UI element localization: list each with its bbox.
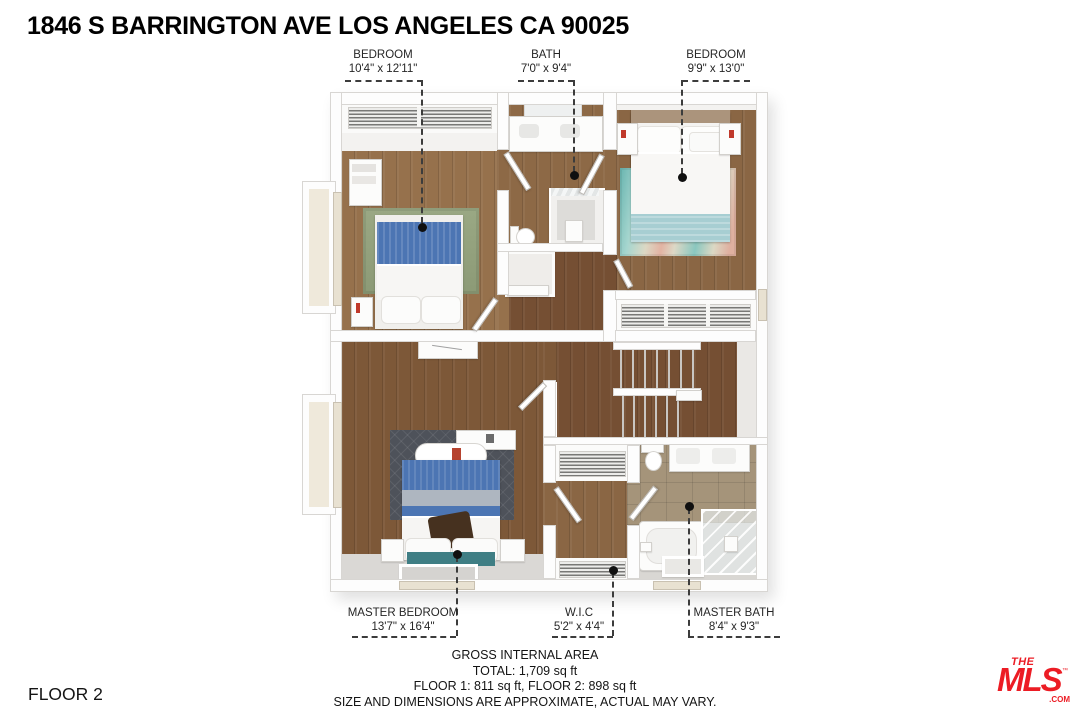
bath-sink-left [519, 124, 539, 138]
stair-baluster [633, 396, 635, 437]
room-label-name: BATH [521, 49, 571, 63]
leader-masterbath-v [688, 508, 690, 636]
leader-bedroom2-h [682, 80, 750, 82]
room-label-bedroom1: BEDROOM 10'4" x 12'11" [349, 49, 418, 76]
outer-wall-right [756, 92, 768, 592]
master-wall-shelf [418, 340, 478, 359]
wall-master-right-a [543, 380, 556, 437]
stair-baluster [644, 350, 646, 388]
room-label-dims: 8'4" x 9'3" [694, 621, 775, 635]
leader-wic-h [552, 636, 613, 638]
closet-bedroom2-louver-doors [621, 304, 751, 328]
bay-window-bottom-sill [309, 402, 329, 507]
stair-baluster [680, 350, 682, 388]
stair-baluster [620, 350, 622, 388]
wall-wic-left-a [543, 445, 556, 483]
stair-baluster [666, 396, 668, 437]
stair-baluster [692, 350, 694, 388]
room-label-wic: W.I.C 5'2" x 4'4" [554, 607, 604, 634]
wall-bedroom2-bottom [615, 290, 756, 300]
wall-master-top [330, 330, 615, 342]
leader-bedroom1-h [345, 80, 423, 82]
stairwell-right-strip [737, 342, 756, 437]
room-label-dims: 7'0" x 9'4" [521, 63, 571, 77]
master-bath-toilet-bowl [645, 451, 662, 471]
leader-bath-v [573, 80, 575, 172]
wall-closet2-bottom [615, 330, 756, 342]
gross-internal-area-label: GROSS INTERNAL AREA [265, 648, 785, 664]
leader-bedroom1-v [421, 80, 423, 223]
themls-logo: THE MLS ™ .COM [996, 656, 1068, 708]
page-title: 1846 S BARRINGTON AVE LOS ANGELES CA 900… [27, 12, 629, 41]
wall-bath-bedroom2-b [603, 190, 617, 255]
window-right-bedroom2 [758, 289, 767, 321]
leader-dot-bedroom1 [418, 223, 427, 232]
closet-bedroom2-door-divider2 [706, 304, 710, 326]
wic-floor [556, 481, 627, 558]
nightstand-bedroom2-right-decor [729, 130, 734, 138]
nightstand-bedroom2-left [617, 123, 638, 155]
logo-com: .COM [1049, 695, 1070, 704]
dresser-bedroom1-drawer2 [352, 176, 376, 184]
bath-shower-glass [551, 188, 599, 196]
room-label-name: MASTER BATH [694, 607, 775, 621]
bed-bedroom2-pillow-small [689, 132, 723, 152]
floor-areas-value: FLOOR 1: 811 sq ft, FLOOR 2: 898 sq ft [265, 679, 785, 695]
room-label-name: BEDROOM [686, 49, 745, 63]
leader-dot-bedroom2 [678, 173, 687, 182]
nightstand-master-right [500, 539, 525, 562]
window-left-bottom [333, 402, 342, 508]
master-bath-sink-right [712, 448, 736, 464]
room-label-dims: 10'4" x 12'11" [349, 63, 418, 77]
linen-closet-shelf [507, 285, 549, 296]
master-wall-panel-decor [486, 434, 494, 443]
bed-bedroom1-pillow-right [421, 296, 461, 324]
leader-dot-masterbath [685, 502, 694, 511]
bath-shower-valve [565, 220, 583, 242]
dresser-bedroom1-drawer [352, 164, 376, 172]
logo-mls: MLS [997, 662, 1061, 698]
master-bench-magazine [452, 448, 461, 460]
nightstand-bedroom1-decor [356, 303, 360, 313]
wall-bedroom1-right-a [497, 92, 509, 150]
logo-trademark: ™ [1062, 668, 1068, 674]
disclaimer-text: SIZE AND DIMENSIONS ARE APPROXIMATE, ACT… [265, 695, 785, 711]
stair-baluster [677, 396, 679, 437]
room-label-dims: 9'9" x 13'0" [686, 63, 745, 77]
room-label-master-bath: MASTER BATH 8'4" x 9'3" [694, 607, 775, 634]
floor-number-label: FLOOR 2 [28, 684, 103, 705]
wall-wic-mbath-top [543, 437, 768, 445]
window-bottom-masterbath [653, 581, 701, 590]
stair-baluster [632, 350, 634, 388]
room-label-master-bedroom: MASTER BEDROOM 13'7" x 16'4" [348, 607, 459, 634]
stair-baluster [656, 350, 658, 388]
bed-master-stripe-gray [402, 490, 500, 506]
bedroom1-ceiling-band [341, 133, 497, 152]
leader-dot-wic [609, 566, 618, 575]
room-label-dims: 13'7" x 16'4" [348, 621, 459, 635]
opening-bath-right [603, 150, 617, 190]
room-label-dims: 5'2" x 4'4" [554, 621, 604, 635]
master-bath-shower-valve [724, 536, 738, 552]
bed-bedroom2-teal-blanket [631, 214, 730, 242]
nightstand-bedroom2-right [719, 123, 741, 155]
stair-baluster [668, 350, 670, 388]
wall-bath-bedroom2-a [603, 92, 617, 150]
room-label-bath: BATH 7'0" x 9'4" [521, 49, 571, 76]
wall-wic-right-a [627, 445, 640, 483]
leader-dot-bath [570, 171, 579, 180]
wall-wic-left-b [543, 525, 556, 579]
bed-bedroom2-pillow-left [637, 126, 681, 154]
wic-top-closet-louver [559, 451, 626, 477]
stair-baluster [622, 396, 624, 437]
room-label-name: BEDROOM [349, 49, 418, 63]
bed-master-blanket-blue [402, 460, 500, 490]
leader-wic-v [612, 572, 614, 636]
leader-dot-master [453, 550, 462, 559]
master-bath-sink-left [676, 448, 700, 464]
area-summary: GROSS INTERNAL AREA TOTAL: 1,709 sq ft F… [265, 648, 785, 710]
master-bath-tub-handle [640, 542, 652, 552]
leader-bath-h [518, 80, 574, 82]
outer-wall-left [330, 92, 342, 592]
outer-wall-bottom [330, 579, 768, 592]
master-bath-mat [662, 556, 704, 577]
room-label-name: W.I.C [554, 607, 604, 621]
stair-baluster [644, 396, 646, 437]
outer-wall-top [330, 92, 768, 105]
bed-bedroom1-pillow-left [381, 296, 421, 324]
leader-masterbath-h [688, 636, 780, 638]
bath-sink-right [560, 124, 580, 138]
nightstand-bedroom1 [351, 297, 373, 327]
floorplan-page: 1846 S BARRINGTON AVE LOS ANGELES CA 900… [0, 0, 1080, 720]
nightstand-master-left [381, 539, 404, 562]
stair-step [676, 390, 702, 401]
leader-bedroom2-v [681, 80, 683, 174]
opening-bedroom1 [497, 295, 509, 330]
leader-master-h [352, 636, 456, 638]
closet-bedroom2-door-divider1 [664, 304, 668, 326]
stair-baluster [655, 396, 657, 437]
wall-wic-right-b [627, 525, 640, 579]
hallway-floor-lower [557, 342, 610, 445]
room-label-name: MASTER BEDROOM [348, 607, 459, 621]
window-bottom-master [399, 581, 475, 590]
room-label-bedroom2: BEDROOM 9'9" x 13'0" [686, 49, 745, 76]
bed-bedroom1-duvet [377, 264, 461, 300]
bay-window-top-sill [309, 189, 329, 306]
window-left-top [333, 192, 342, 306]
stair-rail-upper [613, 342, 701, 350]
nightstand-bedroom2-left-decor [621, 130, 626, 138]
total-area-value: TOTAL: 1,709 sq ft [265, 664, 785, 680]
opening-master [543, 342, 557, 382]
wall-bath-bottom [497, 243, 603, 252]
